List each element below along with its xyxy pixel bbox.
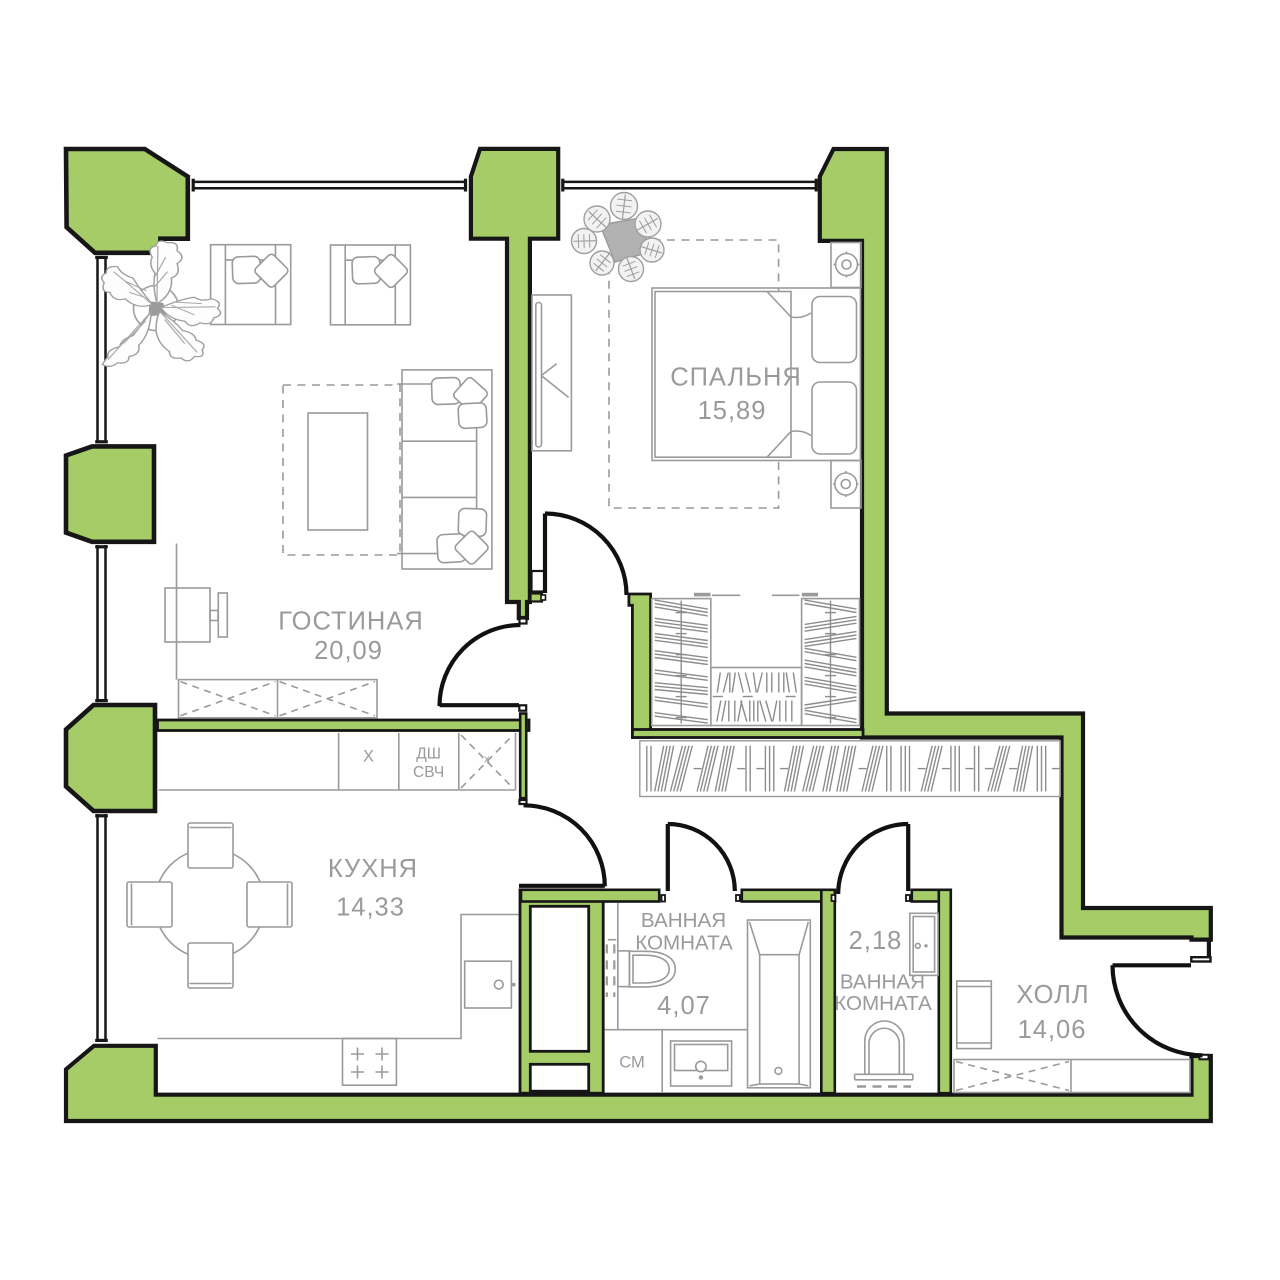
svg-text:ВАННАЯ: ВАННАЯ: [641, 909, 726, 932]
svg-text:КОМНАТА: КОМНАТА: [834, 992, 932, 1015]
svg-text:КОМНАТА: КОМНАТА: [635, 932, 733, 955]
svg-text:ВАННАЯ: ВАННАЯ: [840, 971, 925, 994]
svg-text:ДШ: ДШ: [416, 746, 441, 763]
svg-text:14,33: 14,33: [336, 894, 405, 922]
svg-text:X: X: [363, 748, 374, 766]
svg-text:15,89: 15,89: [698, 397, 767, 425]
svg-text:20,09: 20,09: [314, 637, 383, 665]
svg-text:ХОЛЛ: ХОЛЛ: [1016, 981, 1089, 1009]
svg-text:КУХНЯ: КУХНЯ: [328, 855, 418, 883]
svg-text:ГОСТИНАЯ: ГОСТИНАЯ: [278, 608, 424, 636]
svg-text:x: x: [484, 754, 490, 766]
svg-text:4,07: 4,07: [657, 992, 711, 1020]
svg-text:СМ: СМ: [619, 1054, 644, 1072]
svg-text:14,06: 14,06: [1018, 1016, 1087, 1044]
svg-text:СПАЛЬНЯ: СПАЛЬНЯ: [670, 364, 802, 392]
svg-text:2,18: 2,18: [849, 927, 903, 955]
svg-text:СВЧ: СВЧ: [413, 764, 444, 781]
